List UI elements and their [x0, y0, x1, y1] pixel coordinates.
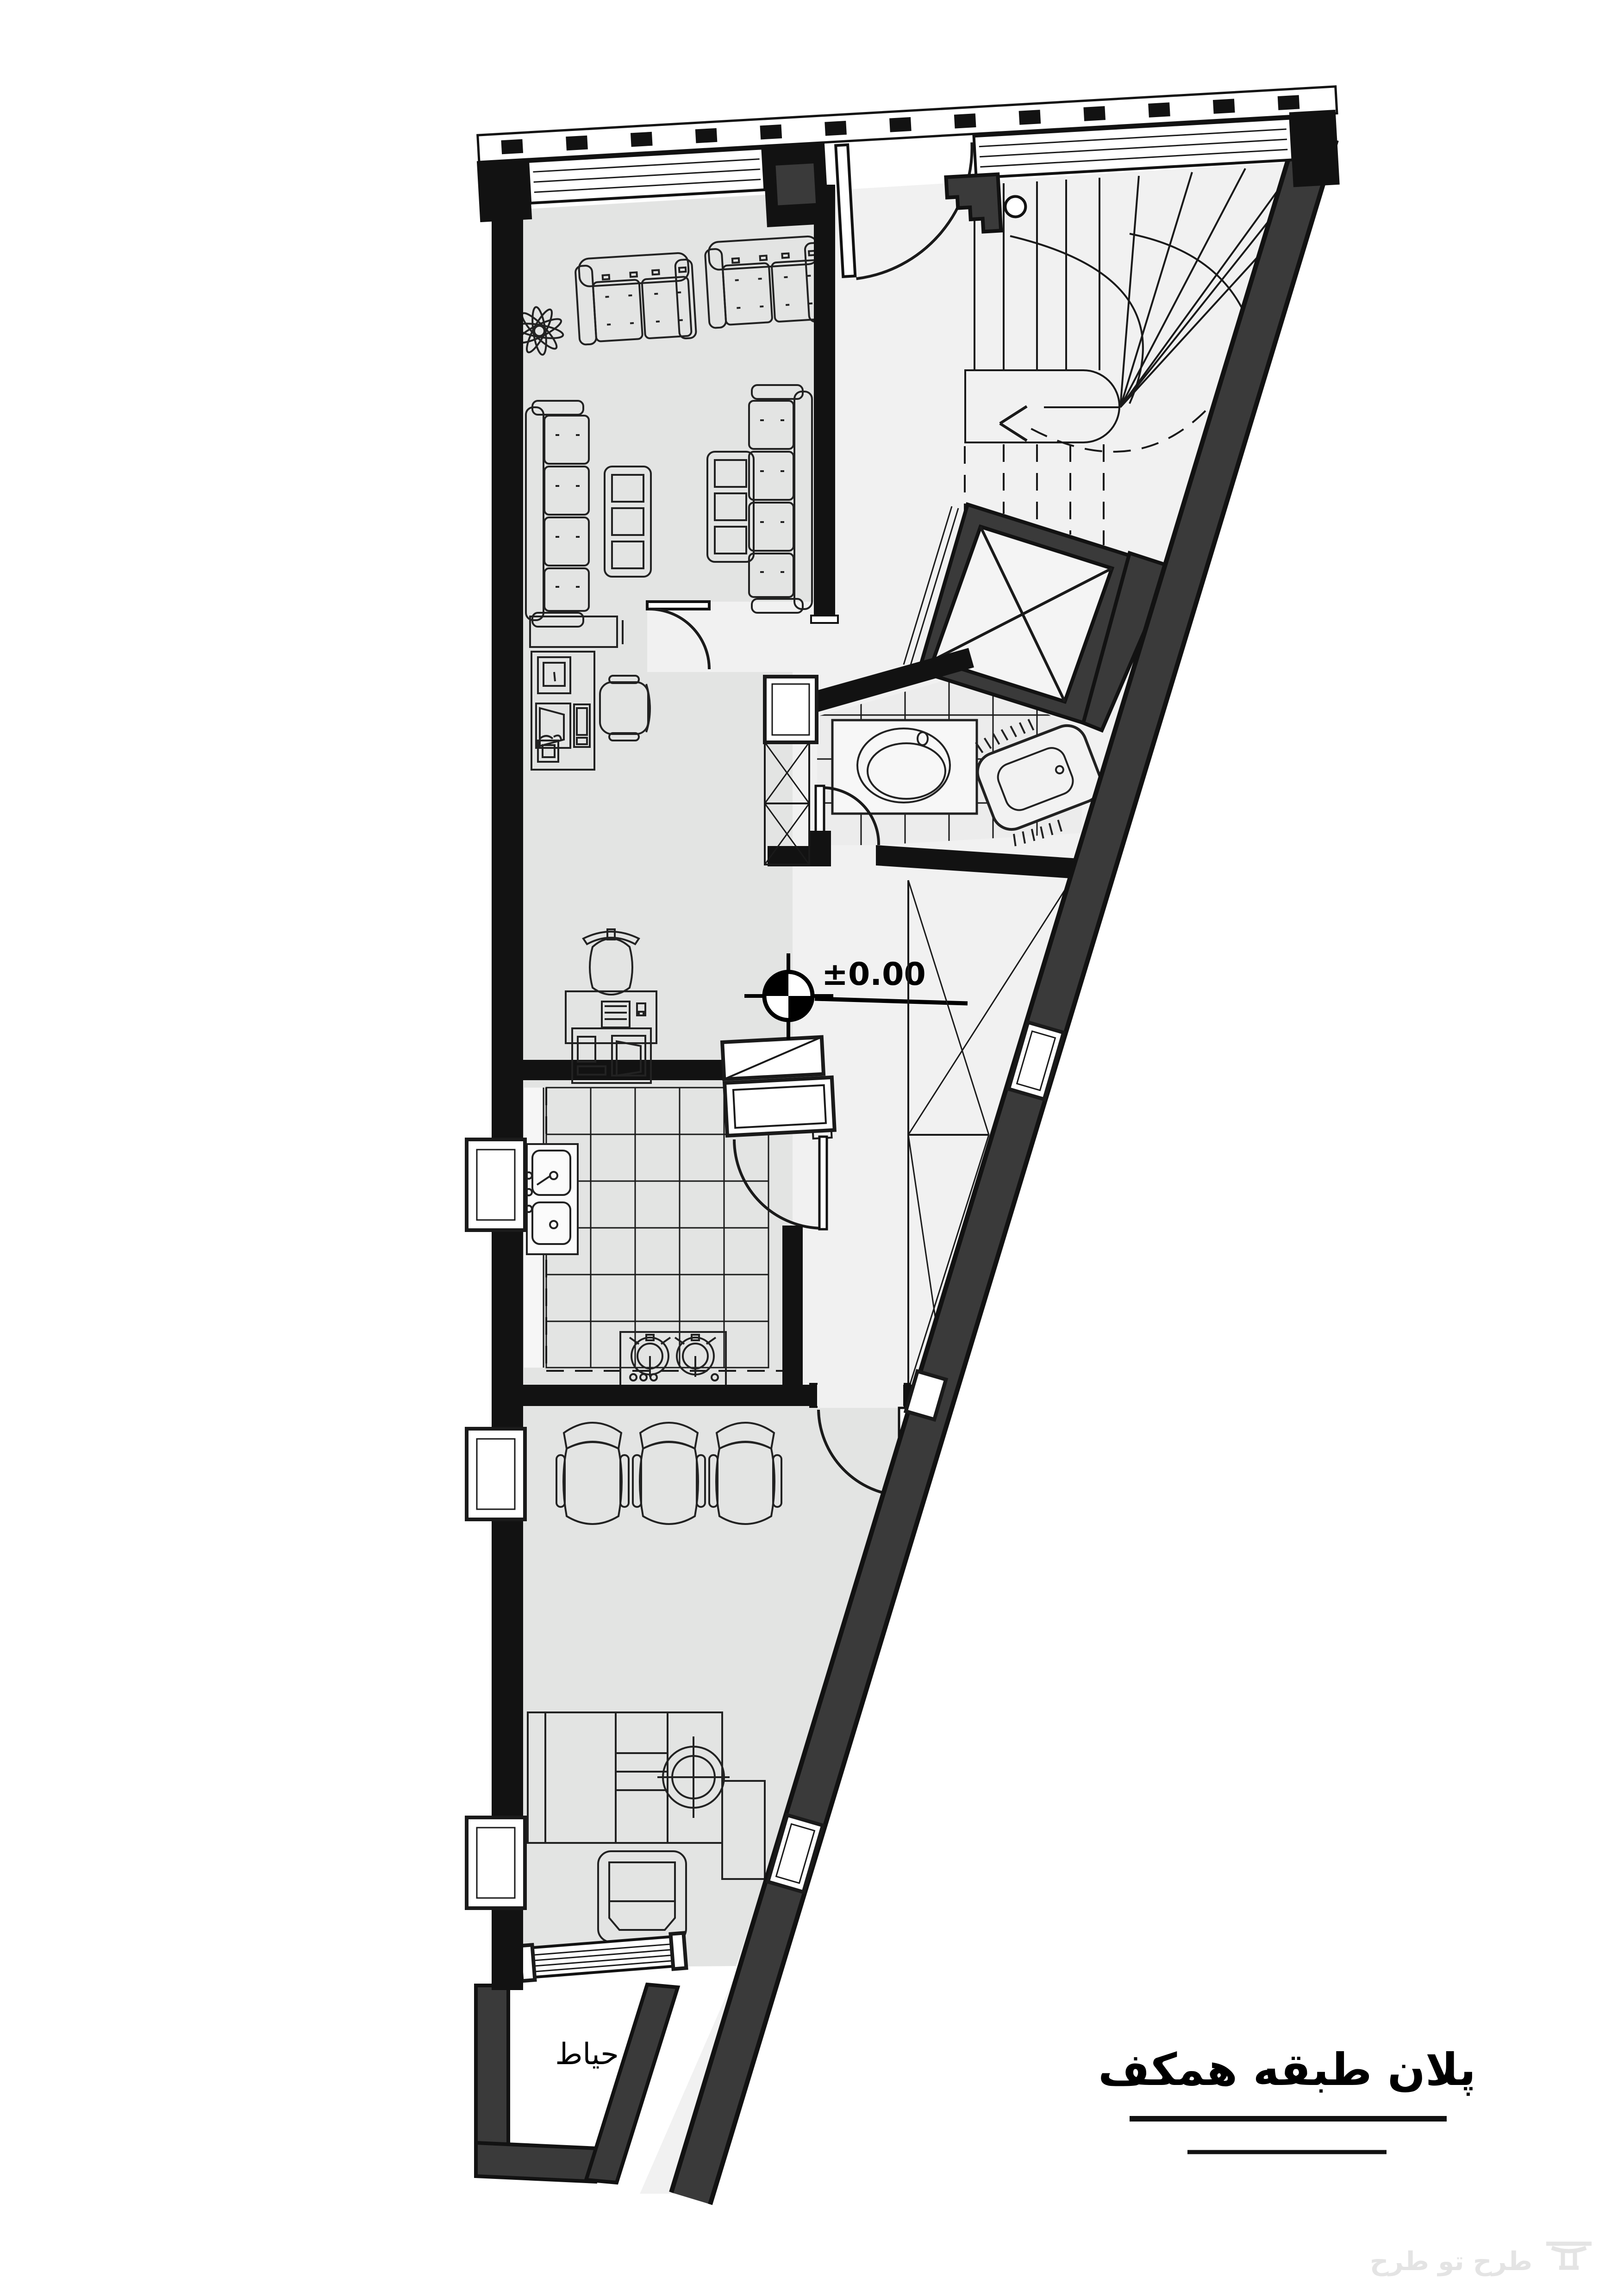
watermark-text: طرح تو طرح: [1370, 2246, 1532, 2277]
corner-column: [477, 158, 532, 222]
wall-end-cap: [811, 616, 838, 623]
stair-start-marker: [1005, 196, 1026, 217]
courtyard-label: حیاط: [555, 2037, 619, 2072]
middle-column: [762, 142, 829, 227]
watermark: طرح تو طرح: [1370, 2244, 1592, 2277]
left-exterior-wall: [467, 204, 526, 1990]
wall-column: [467, 1139, 525, 1230]
vanity-sink-icon: [832, 720, 977, 814]
wall-column: [467, 1817, 525, 1908]
corner-column: [1289, 110, 1340, 187]
watermark-logo: [1546, 2244, 1592, 2268]
floor-plan-page: ±0.00: [0, 0, 1624, 2296]
level-text: ±0.00: [822, 956, 926, 993]
title-block: پلان طبقه همکف: [1098, 2044, 1476, 2152]
kitchen-top-wall: [523, 1060, 723, 1080]
plan-title: پلان طبقه همکف: [1098, 2044, 1476, 2096]
kitchen-sink-icon: [525, 1144, 578, 1254]
floor-plan-svg: ±0.00: [0, 0, 1624, 2296]
reception-right-wall: [814, 185, 835, 622]
kitchen-right-wall: [782, 1226, 803, 1393]
wall-column: [467, 1429, 525, 1519]
courtyard-bottom-wall: [476, 2143, 597, 2182]
